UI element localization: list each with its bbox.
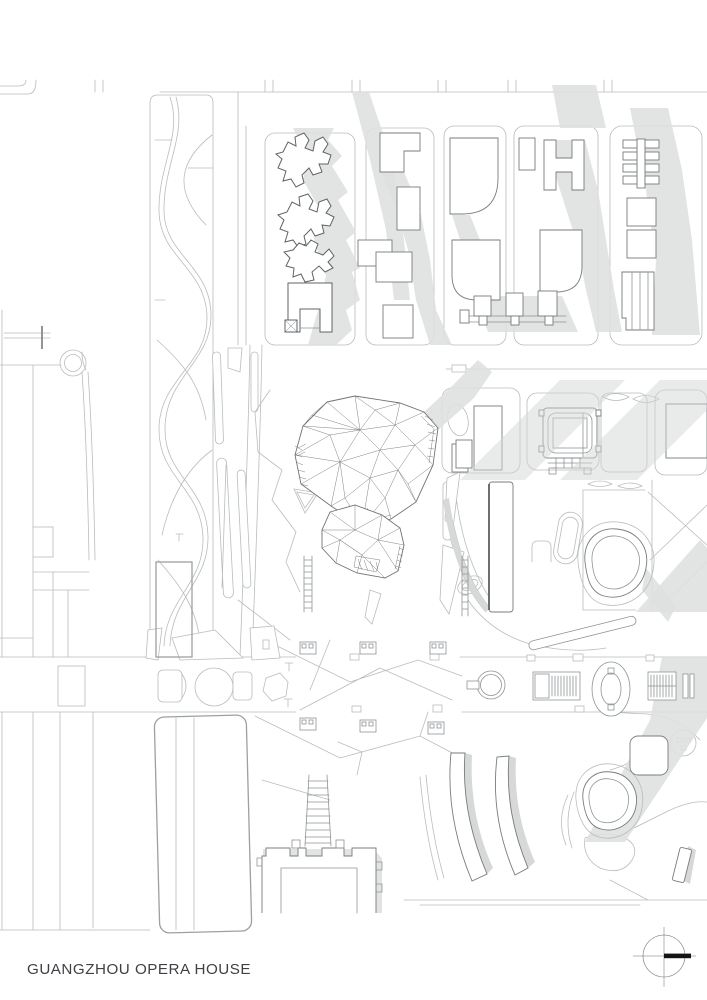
oval-plaza: [592, 662, 630, 716]
site-plan-drawing: GUANGZHOU OPERA HOUSE: [0, 0, 707, 1000]
drawing-title: GUANGZHOU OPERA HOUSE: [27, 961, 251, 978]
north-arrow-compass-icon: [633, 927, 696, 987]
park-path-wave: [159, 97, 207, 646]
site-plan-sheet: GUANGZHOU OPERA HOUSE: [0, 0, 707, 1000]
ramp-strip: [528, 615, 637, 650]
south-boulevard-parcel: [154, 715, 252, 933]
slab-building: [489, 482, 513, 612]
compass-needle: [664, 954, 691, 959]
sheet-annotations: GUANGZHOU OPERA HOUSE: [27, 927, 696, 987]
riverside-park-edge: [150, 95, 213, 657]
grand-staircase: [305, 775, 331, 846]
rounded-triangle-building: [578, 522, 654, 606]
opera-house-volumes: [295, 396, 438, 578]
fountain-circle: [477, 671, 505, 699]
